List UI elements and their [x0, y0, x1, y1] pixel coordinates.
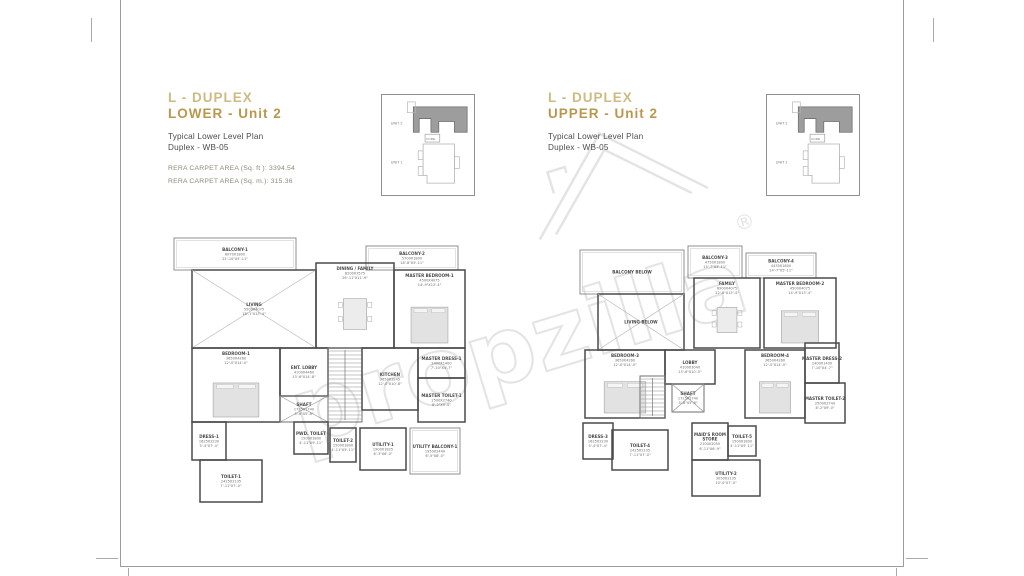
room-dimension: 14'-9"X13'-4" [788, 291, 812, 295]
room-dimension: 4100X4460 [294, 370, 314, 374]
room-master-bedroom-1: MASTER BEDROOM-14500X407514'-9"X13'-4" [394, 270, 465, 348]
room-dimension: 4500X4075 [790, 287, 810, 291]
room-label: BALCONY-2 [399, 251, 425, 256]
room-kitchen: KITCHEN3650X324512'-0"X10'-8" [362, 348, 418, 410]
keyplan-core-label: CORE [426, 137, 435, 141]
keyplan-bump-3 [839, 157, 844, 169]
keyplan-unit2-shape [413, 107, 467, 132]
crop-mark-top-right [933, 18, 934, 42]
room-label: SHAFT [680, 391, 695, 396]
room-dimension: 2500X2740 [431, 398, 451, 402]
room-shaft: SHAFT1725X17405'-8"X5'-8" [672, 384, 704, 412]
room-dimension: 2425X2135 [221, 479, 241, 483]
room-dimension: 5'-4"X7'-4" [589, 444, 608, 448]
room-dimension: 1900X1825 [373, 447, 393, 451]
room-dimension: 13'-6"X14'-8" [292, 375, 316, 379]
page-border-left [120, 0, 121, 566]
room-label: MASTER DRESS-2 [802, 356, 842, 361]
room-dimension: 8'-2"X9'-0" [816, 406, 835, 410]
room-label: STORE [702, 437, 717, 442]
room-dimension: 2100X2050 [700, 442, 720, 446]
room-label: BEDROOM-1 [222, 351, 250, 356]
room-toilet-4: TOILET-42425X21357'-11"X7'-0" [612, 430, 668, 470]
room-label: MASTER BEDROOM-1 [405, 273, 454, 278]
keyplan-bump-2 [418, 167, 423, 176]
room-dimension: 12'-0"X14'-0" [613, 363, 637, 367]
room-dimension: 5700X1800 [402, 256, 422, 260]
room-dimension: 13'-6"X10'-0" [678, 370, 702, 374]
room-label: BALCONY-3 [702, 255, 728, 260]
room-dimension: 22'-8"X13'-4" [715, 291, 739, 295]
room-label: ENT. LOBBY [291, 365, 317, 370]
floor-plan-drawing: BALCONY BELOWBALCONY-34750X180015'-7"X5'… [576, 230, 866, 505]
room-dress-1: DRESS-11625X22305'-4"X7'-4" [192, 422, 226, 460]
crop-mark-bottom-left [96, 558, 118, 559]
upper-title-line1: L - DUPLEX [548, 90, 658, 106]
keyplan-bump-1 [803, 151, 808, 160]
room-dimension: 1725X1740 [678, 396, 698, 400]
room-dimension: 3650X3245 [380, 377, 400, 381]
room-dimension: 1500X1800 [301, 436, 321, 440]
room-master-dress-1: MASTER DRESS-12400X14007'-10"X4'-7" [418, 348, 465, 378]
page-border-right [903, 0, 904, 566]
room-dimension: 5'-4"X7'-4" [200, 444, 219, 448]
room-dimension: 3650X4260 [765, 359, 785, 363]
room-label: DINING / FAMILY [336, 266, 373, 271]
room-living-below: LIVING BELOW [598, 294, 684, 350]
lower-title-line2: LOWER - Unit 2 [168, 106, 295, 122]
lower-rera-sqft: RERA CARPET AREA (Sq. ft ): 3394.54 [168, 162, 295, 175]
upper-panel-header: L - DUPLEX UPPER - Unit 2 Typical Lower … [548, 90, 658, 153]
room-dimension: 4500X4075 [419, 279, 439, 283]
room-dress-3: DRESS-31625X22305'-4"X7'-4" [583, 423, 613, 459]
room-toilet-2: TOILET-21500X18004'-11"X5'-11" [330, 428, 356, 462]
room-ent-lobby: ENT. LOBBY4100X446013'-6"X14'-8" [280, 348, 328, 396]
room-bedroom-1: BEDROOM-13650X426012'-0"X14'-0" [192, 348, 280, 422]
room-dimension: 12'-0"X14'-0" [224, 361, 248, 365]
room-dimension: 2400X1400 [812, 361, 832, 365]
room-dimension: 14'-7"X5'-11" [769, 269, 793, 273]
room-label: FAMILY [719, 281, 735, 286]
room-label: SHAFT [296, 402, 311, 407]
lower-rera-sqm: RERA CARPET AREA (Sq. m.): 315.36 [168, 175, 295, 188]
room-master-bedroom-2: MASTER BEDROOM-24500X407514'-9"X13'-4" [764, 278, 836, 348]
keyplan-inset-lower: UNIT 2 CORE UNIT 1 [381, 94, 475, 196]
page-border-bottom [120, 566, 904, 567]
room-label: DRESS-3 [588, 434, 608, 439]
room-staircase [328, 348, 362, 422]
keyplan-inset-upper: UNIT 2 CORE UNIT 1 [766, 94, 860, 196]
room-dimension: 15'-7"X5'-11" [703, 265, 727, 269]
room-dimension: 6'-3"X6'-0" [374, 452, 393, 456]
crop-tick-bottom-left [128, 568, 129, 576]
room-label: BEDROOM-3 [611, 353, 639, 358]
room-pwd-toilet: PWD. TOILET1500X18004'-11"X5'-11" [294, 422, 328, 454]
keyplan-unit2-label: UNIT 2 [776, 121, 788, 125]
keyplan-bump-2 [803, 167, 808, 176]
room-label: UTILITY-1 [372, 442, 394, 447]
floor-plan-upper: BALCONY BELOWBALCONY-34750X180015'-7"X5'… [576, 230, 866, 505]
room-balcony-below: BALCONY BELOW [580, 250, 684, 294]
room-label: BALCONY BELOW [612, 269, 652, 274]
room-dimension: 5'-8"X5'-8" [295, 412, 314, 416]
room-dimension: 4750X1800 [705, 260, 725, 264]
lower-subtitle-line1: Typical Lower Level Plan [168, 131, 295, 142]
room-label: KITCHEN [380, 372, 401, 377]
room-master-toilet-1: MASTER TOILET-12500X27408'-2"X9'-0" [418, 378, 465, 422]
room-master-dress-2: MASTER DRESS-22400X14007'-10"X4'-7" [802, 343, 842, 383]
room-label: MASTER TOILET-2 [805, 396, 845, 401]
room-dimension: 7'-11"X7'-0" [629, 453, 651, 457]
room-dimension: 8'-2"X9'-0" [432, 403, 451, 407]
crop-tick-bottom-right [896, 568, 897, 576]
crop-mark-top-left [91, 18, 92, 42]
room-dimension: 6'-5"X8'-0" [426, 454, 445, 458]
room-dimension: 5'-8"X5'-8" [679, 401, 698, 405]
room-dimension: 4'-11"X5'-11" [730, 444, 754, 448]
room-dimension: 3050X2135 [716, 476, 736, 480]
room-dimension: 7'-10"X4'-7" [811, 366, 833, 370]
room-dimension: 4100X3040 [680, 365, 700, 369]
room-label: LOBBY [683, 360, 698, 365]
room-label: MASTER DRESS-1 [422, 356, 462, 361]
keyplan-unit2-label: UNIT 2 [391, 121, 403, 125]
room-dimension: 10'-0"X7'-0" [715, 481, 737, 485]
room-master-toilet-2: MASTER TOILET-22500X27408'-2"X9'-0" [805, 383, 845, 423]
keyplan-bump-3 [454, 157, 459, 169]
keyplan-unit2-shape [798, 107, 852, 132]
room-dimension: 1625X2230 [588, 439, 608, 443]
room-dimension: 4'-11"X5'-11" [331, 448, 355, 452]
room-label: TOILET-1 [221, 474, 241, 479]
room-bedroom-4: BEDROOM-43650X426012'-0"X14'-0" [745, 350, 805, 418]
room-dimension: 7'-11"X7'-0" [220, 484, 242, 488]
room-label: MASTER TOILET-1 [421, 393, 461, 398]
room-utility-1: UTILITY-11900X18256'-3"X6'-0" [360, 428, 406, 470]
room-dimension: 2500X2740 [815, 401, 835, 405]
room-dimension: 7'-10"X4'-7" [431, 366, 453, 370]
room-living: LIVING5500X407518'-1"X13'-4" [192, 270, 316, 348]
lower-subtitle-line2: Duplex - WB-05 [168, 142, 295, 153]
room-dimension: 2400X1400 [431, 361, 451, 365]
room-dining-family: DINING / FAMILY8200X357526'-11"X11'-9" [316, 263, 394, 348]
room-dimension: 1500X1800 [333, 443, 353, 447]
room-dimension: 26'-11"X11'-9" [342, 276, 368, 280]
room-family: FAMILY6900X407522'-8"X13'-4" [694, 278, 760, 348]
room-toilet-1: TOILET-12425X21357'-11"X7'-0" [200, 460, 262, 502]
room-label: MASTER BEDROOM-2 [776, 281, 825, 286]
room-dimension: 18'-1"X13'-4" [242, 312, 266, 316]
room-balcony-3: BALCONY-34750X180015'-7"X5'-11" [688, 246, 742, 278]
room-utility-2: UTILITY-23050X213510'-0"X7'-0" [692, 460, 760, 496]
room-dimension: 1500X1800 [732, 439, 752, 443]
keyplan-unit1-label: UNIT 1 [776, 161, 788, 165]
room-label: LIVING [246, 302, 262, 307]
room-dimension: 2425X2135 [630, 448, 650, 452]
table-glyph [343, 299, 366, 330]
room-label: BALCONY-1 [222, 247, 248, 252]
room-label: UTILITY BALCONY-1 [413, 444, 458, 449]
floor-plan-lower: BALCONY-16970X180022'-10"X5'-11"BALCONY-… [168, 230, 473, 505]
room-dimension: 1950X2440 [425, 449, 445, 453]
room-dimension: 4435X1800 [771, 264, 791, 268]
room-label: TOILET-4 [630, 443, 650, 448]
room-dimension: 8200X3575 [345, 272, 365, 276]
upper-subtitle-line1: Typical Lower Level Plan [548, 131, 658, 142]
room-dimension: 6970X1800 [225, 252, 245, 256]
crop-mark-bottom-right [906, 558, 928, 559]
table-glyph [717, 307, 737, 332]
room-maid-s-room-store: MAID'S ROOMSTORE2100X20506'-11"X6'-9" [692, 423, 728, 460]
room-label: BEDROOM-4 [761, 353, 789, 358]
keyplan-core-label: CORE [811, 137, 820, 141]
room-dimension: 1625X2230 [199, 439, 219, 443]
room-dimension: 4'-11"X5'-11" [299, 441, 323, 445]
room-dimension: 22'-10"X5'-11" [222, 257, 248, 261]
room-dimension: 14'-9"X13'-4" [418, 283, 442, 287]
keyplan-unit1-shape [808, 144, 839, 183]
keyplan-unit1-shape [423, 144, 454, 183]
room-label: PWD. TOILET [296, 431, 326, 436]
upper-subtitle-line2: Duplex - WB-05 [548, 142, 658, 153]
room-lobby: LOBBY4100X304013'-6"X10'-0" [665, 350, 715, 384]
room-dimension: 3650X4260 [226, 357, 246, 361]
keyplan-bump-1 [418, 151, 423, 160]
room-dimension: 18'-8"X5'-11" [400, 261, 424, 265]
room-dimension: 3650X4260 [615, 359, 635, 363]
room-dimension: 5500X4075 [244, 307, 264, 311]
room-balcony-4: BALCONY-44435X180014'-7"X5'-11" [746, 253, 816, 278]
room-dimension: 12'-0"X10'-8" [378, 382, 402, 386]
room-dimension: 6900X4075 [717, 287, 737, 291]
room-shaft: SHAFT1725X17405'-8"X5'-8" [280, 396, 328, 422]
room-staircase [640, 376, 665, 418]
room-label: UTILITY-2 [715, 471, 737, 476]
lower-title-line1: L - DUPLEX [168, 90, 295, 106]
room-dimension: 1725X1740 [294, 407, 314, 411]
room-utility-balcony-1: UTILITY BALCONY-11950X24406'-5"X8'-0" [410, 428, 460, 474]
keyplan-unit1-label: UNIT 1 [391, 161, 403, 165]
room-balcony-1: BALCONY-16970X180022'-10"X5'-11" [174, 238, 296, 270]
room-toilet-5: TOILET-51500X18004'-11"X5'-11" [728, 426, 756, 456]
room-dimension: 12'-0"X14'-0" [763, 363, 787, 367]
upper-title-line2: UPPER - Unit 2 [548, 106, 658, 122]
room-label: LIVING BELOW [624, 319, 658, 324]
room-label: TOILET-2 [333, 438, 353, 443]
floor-plan-drawing: BALCONY-16970X180022'-10"X5'-11"BALCONY-… [168, 230, 473, 505]
room-label: TOILET-5 [732, 434, 752, 439]
room-label: DRESS-1 [199, 434, 219, 439]
brochure-page: propzilla ® L - DUPLEX LOWER - Unit 2 Ty… [0, 0, 1024, 576]
room-label: BALCONY-4 [768, 258, 794, 263]
lower-panel-header: L - DUPLEX LOWER - Unit 2 Typical Lower … [168, 90, 295, 188]
room-dimension: 6'-11"X6'-9" [699, 447, 721, 451]
